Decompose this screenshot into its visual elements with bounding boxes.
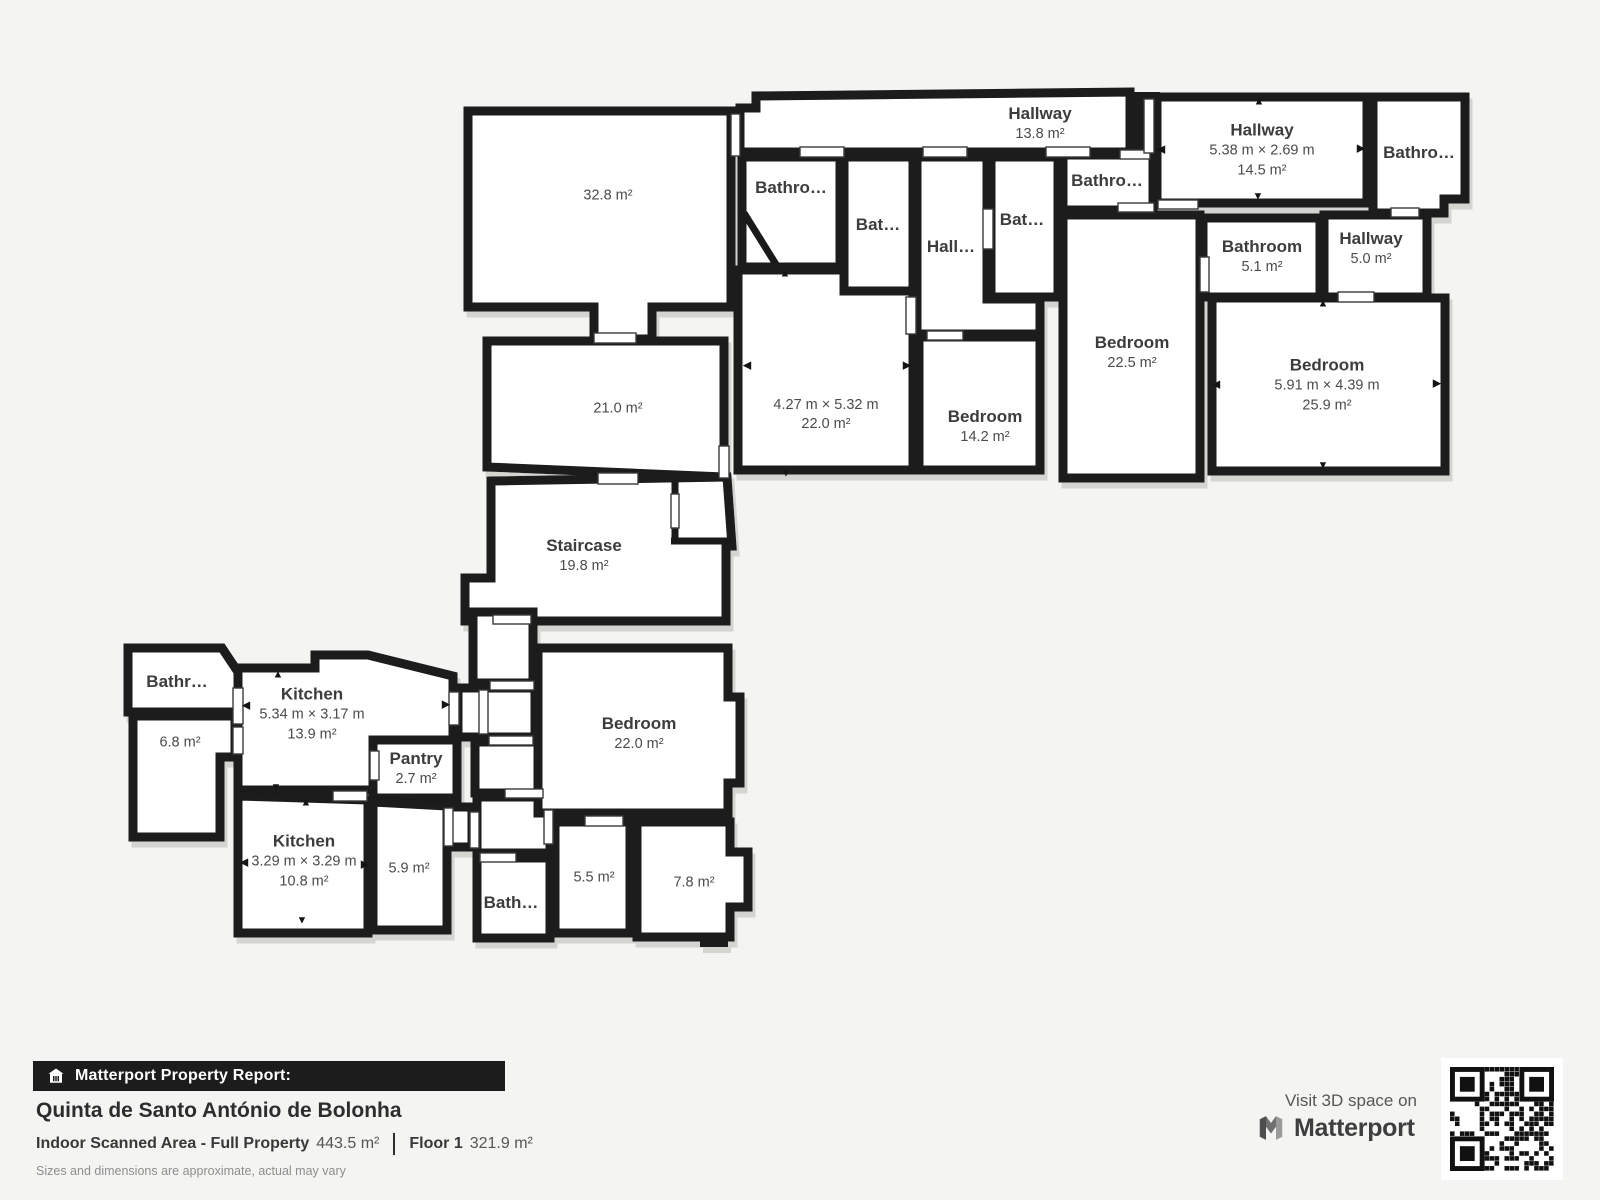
door-marker bbox=[906, 297, 916, 334]
area-stats: Indoor Scanned Area - Full Property 443.… bbox=[36, 1133, 533, 1155]
door-marker bbox=[480, 853, 516, 862]
room-label-7-8: 7.8 m² bbox=[673, 873, 714, 892]
dim-arrow-right-icon: ▶ bbox=[442, 700, 450, 711]
room-shape-vestibule-2 bbox=[458, 688, 535, 737]
room-label-bedroom-14-2: Bedroom14.2 m² bbox=[948, 406, 1023, 448]
door-marker bbox=[233, 727, 243, 754]
qr-code bbox=[1441, 1058, 1563, 1180]
matterport-logo-icon bbox=[1256, 1113, 1286, 1143]
room-label-bath-d: Bat… bbox=[1000, 209, 1044, 231]
dim-arrow-down-icon: ▼ bbox=[271, 783, 282, 794]
door-marker bbox=[444, 808, 453, 846]
door-marker bbox=[470, 812, 479, 848]
dim-arrow-right-icon: ▶ bbox=[1357, 144, 1365, 155]
door-marker bbox=[1200, 257, 1209, 292]
room-label-hallway-14-5: Hallway5.38 m × 2.69 m14.5 m² bbox=[1209, 120, 1314, 181]
dim-arrow-up-icon: ▲ bbox=[301, 798, 312, 809]
room-label-21-0: 21.0 m² bbox=[593, 399, 642, 418]
dim-arrow-right-icon: ▶ bbox=[903, 361, 911, 372]
property-name: Quinta de Santo António de Bolonha bbox=[36, 1099, 402, 1123]
dim-arrow-up-icon: ▲ bbox=[1318, 299, 1329, 310]
matterport-brand: Matterport bbox=[1256, 1113, 1415, 1143]
dim-arrow-left-icon: ◀ bbox=[1212, 380, 1220, 391]
room-label-kitchen-10-8: Kitchen3.29 m × 3.29 m10.8 m² bbox=[251, 831, 356, 892]
room-label-bedroom-22-5: Bedroom22.5 m² bbox=[1095, 332, 1170, 374]
door-marker bbox=[1046, 147, 1090, 157]
room-shape-22-0 bbox=[738, 270, 913, 470]
room-label-bathroom-tr: Bathro… bbox=[1383, 142, 1455, 164]
door-marker bbox=[585, 816, 623, 826]
dim-arrow-left-icon: ◀ bbox=[1157, 145, 1165, 156]
floor-label: Floor 1 bbox=[409, 1135, 462, 1153]
room-label-bedroom-25-9: Bedroom5.91 m × 4.39 m25.9 m² bbox=[1274, 355, 1379, 416]
door-marker bbox=[333, 791, 367, 801]
stats-divider bbox=[393, 1133, 395, 1155]
room-label-bathroom-e: Bathro… bbox=[1071, 170, 1143, 192]
dim-arrow-right-icon: ▶ bbox=[361, 860, 369, 871]
report-bar-label: Matterport Property Report: bbox=[75, 1067, 291, 1085]
room-label-22-0: 4.27 m × 5.32 m22.0 m² bbox=[773, 396, 878, 434]
area-label: Indoor Scanned Area - Full Property bbox=[36, 1135, 309, 1153]
door-marker bbox=[1391, 208, 1419, 217]
door-marker bbox=[731, 114, 740, 156]
dim-arrow-down-icon: ▼ bbox=[297, 916, 308, 927]
room-label-bath-bottom: Bath… bbox=[484, 892, 539, 914]
floorplan-report: 32.8 m² 21.0 m² Hallway13.8 m² Bathro… B… bbox=[0, 0, 1600, 1200]
door-marker bbox=[479, 690, 488, 734]
door-marker bbox=[489, 736, 533, 745]
door-marker bbox=[983, 209, 993, 249]
door-marker bbox=[594, 333, 636, 343]
disclaimer-text: Sizes and dimensions are approximate, ac… bbox=[36, 1164, 346, 1178]
door-marker bbox=[1144, 99, 1154, 153]
door-marker bbox=[923, 147, 967, 157]
room-label-staircase: Staircase19.8 m² bbox=[546, 535, 622, 577]
dim-arrow-down-icon: ▼ bbox=[1318, 461, 1329, 472]
door-marker bbox=[671, 494, 679, 528]
door-marker bbox=[1338, 292, 1374, 302]
report-header-bar: Matterport Property Report: bbox=[33, 1061, 505, 1091]
dim-arrow-down-icon: ▼ bbox=[1253, 192, 1264, 203]
area-value: 443.5 m² bbox=[316, 1135, 379, 1153]
room-shape-bathroom-a bbox=[742, 157, 840, 267]
dim-arrow-left-icon: ◀ bbox=[240, 858, 248, 869]
visit-3d-label: Visit 3D space on bbox=[1285, 1091, 1417, 1111]
door-marker bbox=[493, 615, 531, 624]
door-marker bbox=[449, 692, 459, 725]
door-marker bbox=[719, 446, 729, 478]
qr-pattern bbox=[1450, 1067, 1554, 1171]
room-shape-32-8 bbox=[468, 111, 731, 339]
room-label-bathr-left: Bathr… bbox=[146, 671, 207, 693]
room-shape-bedroom-14-2 bbox=[919, 337, 1040, 470]
room-label-bedroom-22-0: Bedroom22.0 m² bbox=[602, 713, 677, 755]
dim-arrow-up-icon: ▲ bbox=[1254, 97, 1265, 108]
matterport-wordmark: Matterport bbox=[1294, 1114, 1415, 1143]
room-label-hallway-5-0: Hallway5.0 m² bbox=[1339, 228, 1402, 270]
room-label-5-5: 5.5 m² bbox=[573, 868, 614, 887]
dim-arrow-left-icon: ◀ bbox=[242, 701, 250, 712]
door-marker bbox=[544, 810, 553, 844]
door-marker bbox=[1118, 203, 1154, 212]
room-label-32-8: 32.8 m² bbox=[583, 186, 632, 205]
dim-arrow-up-icon: ▲ bbox=[273, 670, 284, 681]
door-marker bbox=[800, 147, 844, 157]
dim-arrow-right-icon: ▶ bbox=[1433, 379, 1441, 390]
door-marker bbox=[927, 331, 963, 340]
door-marker bbox=[598, 473, 638, 484]
dim-arrow-left-icon: ◀ bbox=[743, 361, 751, 372]
room-label-5-9: 5.9 m² bbox=[388, 859, 429, 878]
room-label-bath-b: Bat… bbox=[856, 214, 900, 236]
room-label-bathroom-5-1: Bathroom5.1 m² bbox=[1222, 236, 1302, 278]
door-marker bbox=[505, 789, 543, 798]
wall-tab bbox=[700, 933, 728, 947]
room-label-kitchen-13-9: Kitchen5.34 m × 3.17 m13.9 m² bbox=[259, 684, 364, 745]
room-label-hall-c: Hall… bbox=[927, 236, 975, 258]
room-label-bathroom-a: Bathro… bbox=[755, 177, 827, 199]
door-marker bbox=[1158, 200, 1198, 209]
house-icon bbox=[47, 1067, 65, 1085]
room-label-pantry: Pantry2.7 m² bbox=[390, 748, 443, 790]
floor-value: 321.9 m² bbox=[470, 1135, 533, 1153]
dim-arrow-up-icon: ▲ bbox=[780, 269, 791, 280]
door-marker bbox=[370, 751, 379, 780]
door-marker bbox=[490, 681, 534, 690]
dim-arrow-down-icon: ▼ bbox=[781, 469, 792, 480]
room-label-6-8: 6.8 m² bbox=[159, 733, 200, 752]
room-label-hallway-13-8: Hallway13.8 m² bbox=[1008, 103, 1071, 145]
